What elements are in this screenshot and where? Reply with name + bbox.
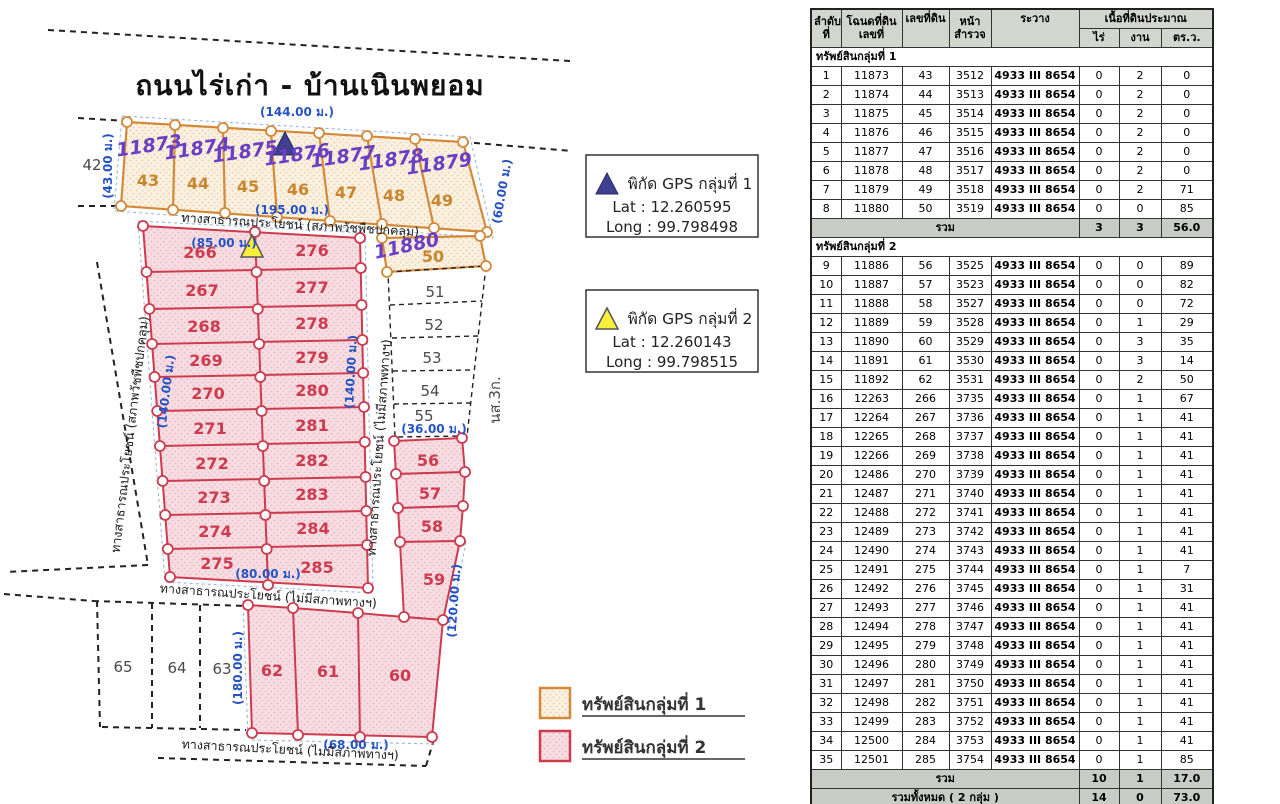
- svg-text:57: 57: [419, 484, 441, 503]
- map-title: ถนนไร่เก่า - บ้านเนินพยอม: [135, 69, 484, 102]
- survey-document-page: ถนนไร่เก่า - บ้านเนินพยอม: [0, 0, 1280, 804]
- svg-text:282: 282: [295, 451, 328, 470]
- table-row: 261249227637454933 III 86540131: [811, 580, 1213, 599]
- svg-text:(43.00 ม.): (43.00 ม.): [101, 133, 115, 199]
- group-title-row: ทรัพย์สินกลุ่มที่ 1: [811, 48, 1213, 67]
- group-title-row: ทรัพย์สินกลุ่มที่ 2: [811, 238, 1213, 257]
- svg-text:53: 53: [422, 349, 441, 367]
- table-row: 3118754535144933 III 8654020: [811, 105, 1213, 124]
- svg-text:62: 62: [261, 661, 283, 680]
- svg-text:274: 274: [198, 522, 231, 541]
- svg-text:(80.00 ม.): (80.00 ม.): [235, 567, 301, 581]
- svg-text:65: 65: [113, 658, 132, 676]
- svg-text:(60.00 ม.): (60.00 ม.): [489, 158, 514, 225]
- table-row: 271249327737464933 III 86540141: [811, 599, 1213, 618]
- svg-text:Long : 99.798515: Long : 99.798515: [606, 353, 738, 371]
- svg-text:47: 47: [335, 183, 357, 202]
- svg-text:59: 59: [423, 570, 445, 589]
- legend-label-group2: ทรัพย์สินกลุ่มที่ 2: [582, 735, 706, 758]
- svg-text:275: 275: [200, 554, 233, 573]
- table-row: 251249127537444933 III 8654017: [811, 561, 1213, 580]
- svg-text:270: 270: [191, 384, 224, 403]
- table-row: 291249527937484933 III 86540141: [811, 637, 1213, 656]
- cadastral-map: ถนนไร่เก่า - บ้านเนินพยอม: [0, 0, 810, 804]
- table-row: 7118794935184933 III 86540271: [811, 181, 1213, 200]
- legend-swatch-group2: [540, 731, 570, 761]
- svg-text:268: 268: [187, 317, 220, 336]
- table-row: 8118805035194933 III 86540085: [811, 200, 1213, 219]
- legend-label-group1: ทรัพย์สินกลุ่มที่ 1: [582, 692, 706, 715]
- svg-text:277: 277: [295, 278, 328, 297]
- table-row: 161226326637354933 III 86540167: [811, 390, 1213, 409]
- table-row: 10118875735234933 III 86540082: [811, 276, 1213, 295]
- table-row: 12118895935284933 III 86540129: [811, 314, 1213, 333]
- svg-text:(180.00 ม.): (180.00 ม.): [231, 631, 245, 705]
- svg-text:พิกัด GPS กลุ่มที่ 1: พิกัด GPS กลุ่มที่ 1: [628, 173, 753, 194]
- svg-text:50: 50: [422, 247, 444, 266]
- svg-text:42: 42: [82, 156, 101, 174]
- group-total-row: รวม10117.0: [811, 770, 1213, 789]
- svg-text:280: 280: [295, 381, 328, 400]
- svg-text:48: 48: [383, 186, 405, 205]
- col-deed: โฉนดที่ดินเลขที่: [841, 9, 902, 48]
- svg-text:51: 51: [425, 283, 444, 301]
- table-row: 201248627037394933 III 86540141: [811, 466, 1213, 485]
- table-row: 301249628037494933 III 86540141: [811, 656, 1213, 675]
- table-row: 11118885835274933 III 86540072: [811, 295, 1213, 314]
- group2-parcel-block: [143, 226, 368, 588]
- svg-text:(144.00 ม.): (144.00 ม.): [260, 105, 334, 119]
- table-row: 14118916135304933 III 86540314: [811, 352, 1213, 371]
- svg-text:61: 61: [317, 662, 339, 681]
- col-rai: ไร่: [1079, 29, 1119, 48]
- col-ngan: งาน: [1119, 29, 1161, 48]
- svg-text:281: 281: [295, 416, 328, 435]
- svg-text:285: 285: [300, 558, 333, 577]
- svg-text:273: 273: [197, 488, 230, 507]
- svg-text:276: 276: [295, 241, 328, 260]
- table-row: 1118734335124933 III 8654020: [811, 67, 1213, 86]
- table-row: 341250028437534933 III 86540141: [811, 732, 1213, 751]
- svg-text:Long : 99.798498: Long : 99.798498: [606, 218, 738, 236]
- svg-text:64: 64: [167, 659, 186, 677]
- grand-total-row: รวมทั้งหมด ( 2 กลุ่ม )14073.0: [811, 789, 1213, 804]
- svg-text:45: 45: [237, 177, 259, 196]
- svg-text:(85.00 ม.): (85.00 ม.): [191, 236, 257, 250]
- col-no: ลำดับที่: [811, 9, 841, 48]
- svg-text:(36.00 ม.): (36.00 ม.): [401, 422, 467, 436]
- table-row: 331249928337524933 III 86540141: [811, 713, 1213, 732]
- table-row: 231248927337424933 III 86540141: [811, 523, 1213, 542]
- svg-text:269: 269: [189, 351, 222, 370]
- table-row: 15118926235314933 III 86540250: [811, 371, 1213, 390]
- group-total-row: รวม3356.0: [811, 219, 1213, 238]
- svg-text:54: 54: [420, 382, 439, 400]
- svg-text:43: 43: [137, 171, 159, 190]
- svg-text:284: 284: [296, 519, 329, 538]
- table-row: 281249427837474933 III 86540141: [811, 618, 1213, 637]
- land-area-table: ลำดับที่ โฉนดที่ดินเลขที่ เลขที่ดิน หน้า…: [810, 8, 1222, 804]
- svg-text:271: 271: [193, 419, 226, 438]
- table-row: 5118774735164933 III 8654020: [811, 143, 1213, 162]
- col-map-sheet: ระวาง: [991, 9, 1079, 48]
- table-row: 191226626937384933 III 86540141: [811, 447, 1213, 466]
- table-row: 211248727137404933 III 86540141: [811, 485, 1213, 504]
- svg-text:52: 52: [424, 316, 443, 334]
- table-row: 241249027437434933 III 86540141: [811, 542, 1213, 561]
- svg-text:272: 272: [195, 454, 228, 473]
- table-row: 171226426737364933 III 86540141: [811, 409, 1213, 428]
- table-row: 351250128537544933 III 86540185: [811, 751, 1213, 770]
- gps-box-group1: พิกัด GPS กลุ่มที่ 1 Lat : 12.260595 Lon…: [586, 155, 758, 237]
- svg-text:60: 60: [389, 666, 411, 685]
- legend-swatch-group1: [540, 688, 570, 718]
- svg-text:283: 283: [295, 485, 328, 504]
- table-header: ลำดับที่ โฉนดที่ดินเลขที่ เลขที่ดิน หน้า…: [811, 9, 1213, 48]
- table-row: 311249728137504933 III 86540141: [811, 675, 1213, 694]
- col-survey-page: หน้าสำรวจ: [949, 9, 991, 48]
- svg-text:63: 63: [212, 660, 231, 678]
- svg-text:46: 46: [287, 180, 309, 199]
- table-row: 221248827237414933 III 86540141: [811, 504, 1213, 523]
- col-wah: ตร.ว.: [1161, 29, 1213, 48]
- gps-box-group2: พิกัด GPS กลุ่มที่ 2 Lat : 12.260143 Lon…: [586, 290, 758, 372]
- table-row: 181226526837374933 III 86540141: [811, 428, 1213, 447]
- svg-text:267: 267: [185, 281, 218, 300]
- svg-text:Lat : 12.260143: Lat : 12.260143: [612, 333, 731, 351]
- col-area-group: เนื้อที่ดินประมาณ: [1079, 9, 1213, 29]
- svg-text:279: 279: [295, 348, 328, 367]
- ns3k-label: นส.3ก.: [486, 376, 504, 424]
- table-row: 13118906035294933 III 86540335: [811, 333, 1213, 352]
- table-row: 6118784835174933 III 8654020: [811, 162, 1213, 181]
- legend: ทรัพย์สินกลุ่มที่ 1 ทรัพย์สินกลุ่มที่ 2: [540, 688, 745, 761]
- svg-text:49: 49: [431, 191, 453, 210]
- svg-text:Lat : 12.260595: Lat : 12.260595: [612, 198, 731, 216]
- table-row: 321249828237514933 III 86540141: [811, 694, 1213, 713]
- svg-text:พิกัด GPS กลุ่มที่ 2: พิกัด GPS กลุ่มที่ 2: [628, 308, 753, 329]
- svg-text:ทางสาธารณประโยชน์ (สภาพวัชพืชป: ทางสาธารณประโยชน์ (สภาพวัชพืชปกคลุม): [108, 315, 153, 553]
- col-land-no: เลขที่ดิน: [902, 9, 949, 48]
- table-row: 2118744435134933 III 8654020: [811, 86, 1213, 105]
- table-row: 4118764635154933 III 8654020: [811, 124, 1213, 143]
- svg-text:58: 58: [421, 517, 443, 536]
- svg-text:278: 278: [295, 314, 328, 333]
- svg-text:56: 56: [417, 451, 439, 470]
- svg-text:44: 44: [187, 174, 209, 193]
- table-row: 9118865635254933 III 86540089: [811, 257, 1213, 276]
